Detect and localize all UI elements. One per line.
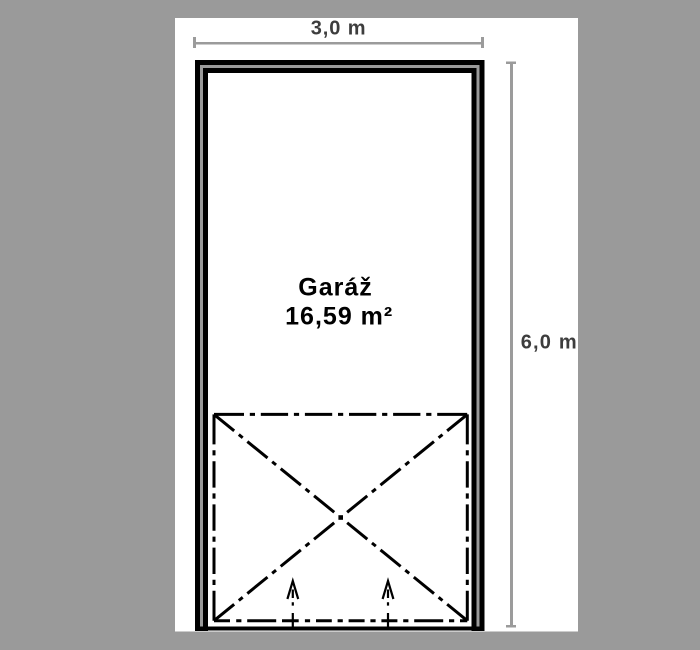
svg-text:3,0 m: 3,0 m (311, 17, 367, 39)
svg-text:16,59 m²: 16,59 m² (285, 303, 393, 331)
svg-text:Garáž: Garáž (298, 274, 372, 302)
svg-text:6,0 m: 6,0 m (521, 331, 578, 353)
